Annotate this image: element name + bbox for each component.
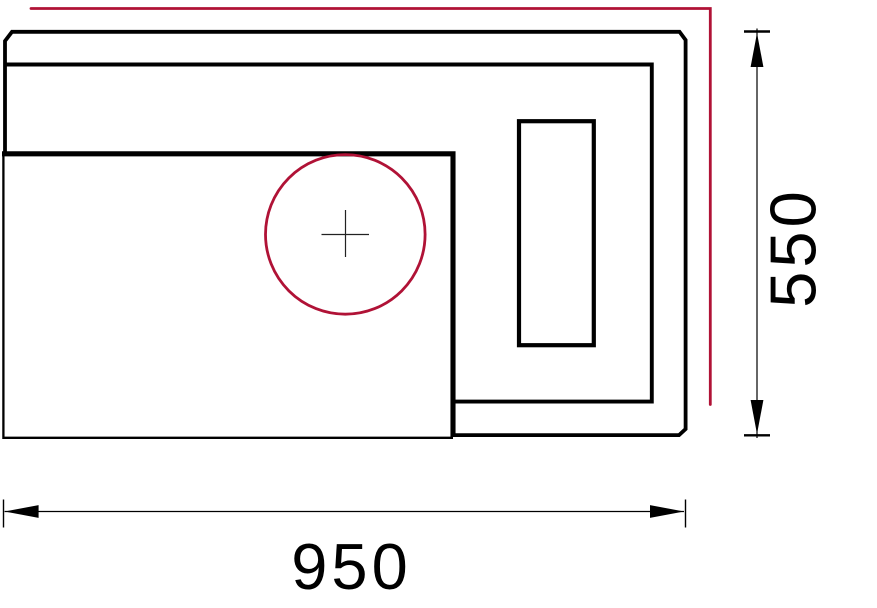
svg-text:550: 550 [757, 187, 830, 307]
svg-text:950: 950 [291, 530, 411, 603]
